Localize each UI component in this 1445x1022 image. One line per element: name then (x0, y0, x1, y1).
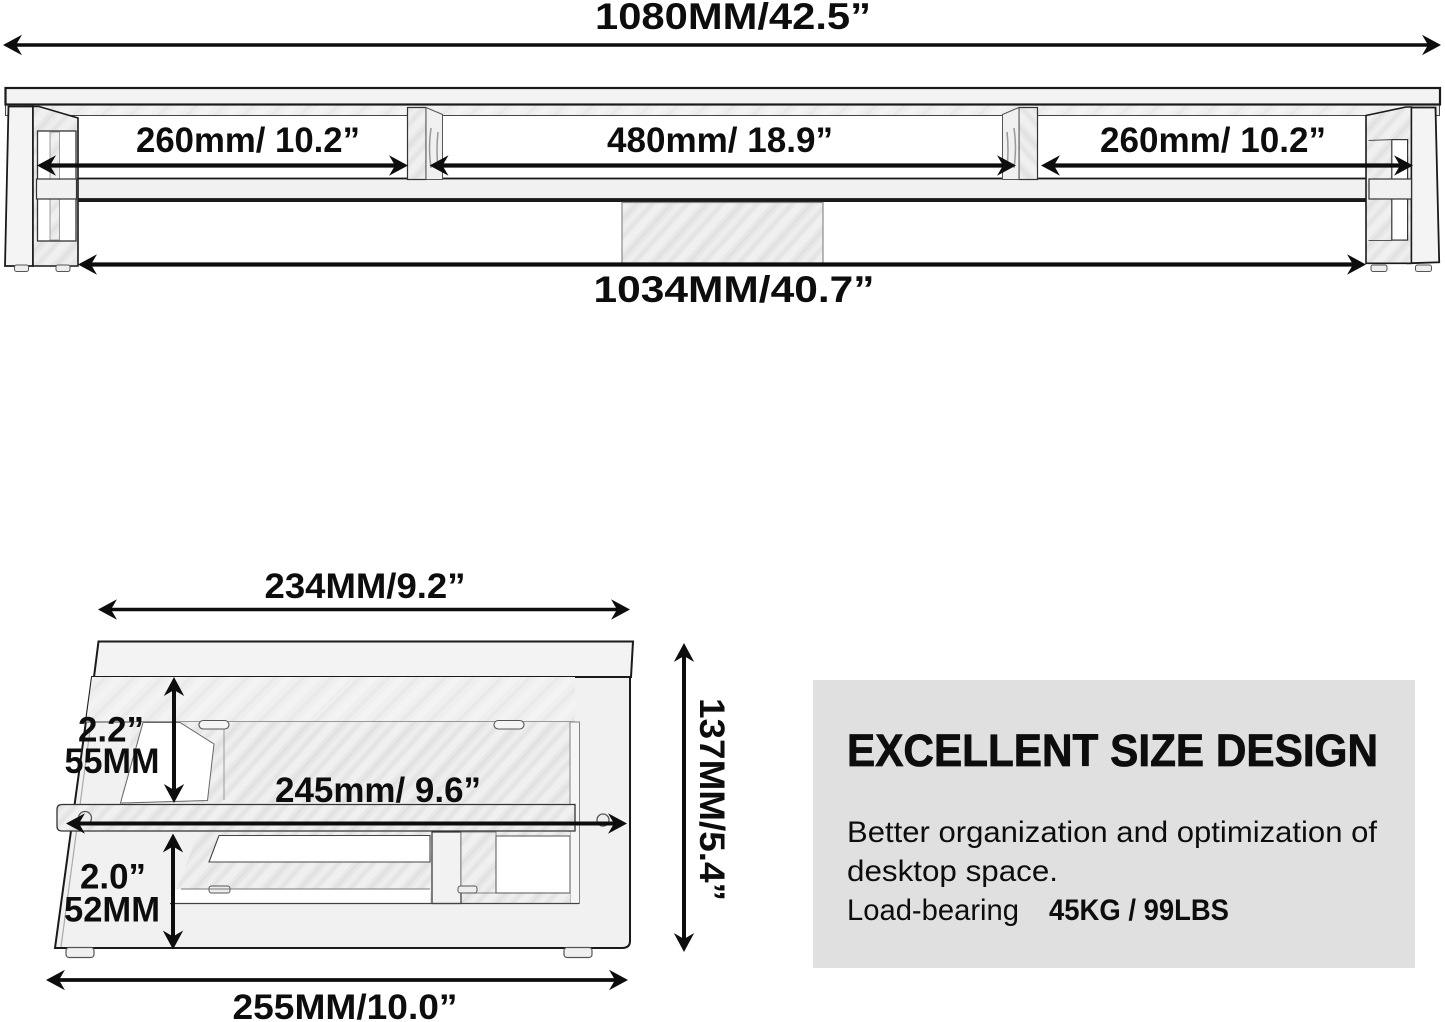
svg-text:desktop space.: desktop space. (847, 855, 1058, 888)
svg-text:234MM/9.2”: 234MM/9.2” (265, 567, 466, 606)
svg-text:260mm/ 10.2”: 260mm/ 10.2” (136, 121, 360, 160)
svg-text:45KG / 99LBS: 45KG / 99LBS (1049, 894, 1229, 927)
svg-text:255MM/10.0”: 255MM/10.0” (233, 988, 458, 1022)
svg-text:52MM: 52MM (64, 891, 160, 930)
svg-text:1080MM/42.5”: 1080MM/42.5” (595, 0, 871, 37)
svg-text:245mm/ 9.6”: 245mm/ 9.6” (275, 771, 481, 810)
svg-text:137MM/5.4”: 137MM/5.4” (692, 698, 731, 901)
svg-text:55MM: 55MM (65, 742, 160, 781)
svg-text:Better organization and optimi: Better organization and optimization of (847, 816, 1378, 849)
svg-text:EXCELLENT SIZE DESIGN: EXCELLENT SIZE DESIGN (847, 725, 1378, 776)
svg-text:Load-bearing: Load-bearing (847, 894, 1019, 927)
svg-text:260mm/ 10.2”: 260mm/ 10.2” (1100, 121, 1326, 160)
svg-text:1034MM/40.7”: 1034MM/40.7” (594, 269, 875, 310)
svg-text:480mm/ 18.9”: 480mm/ 18.9” (607, 121, 833, 160)
